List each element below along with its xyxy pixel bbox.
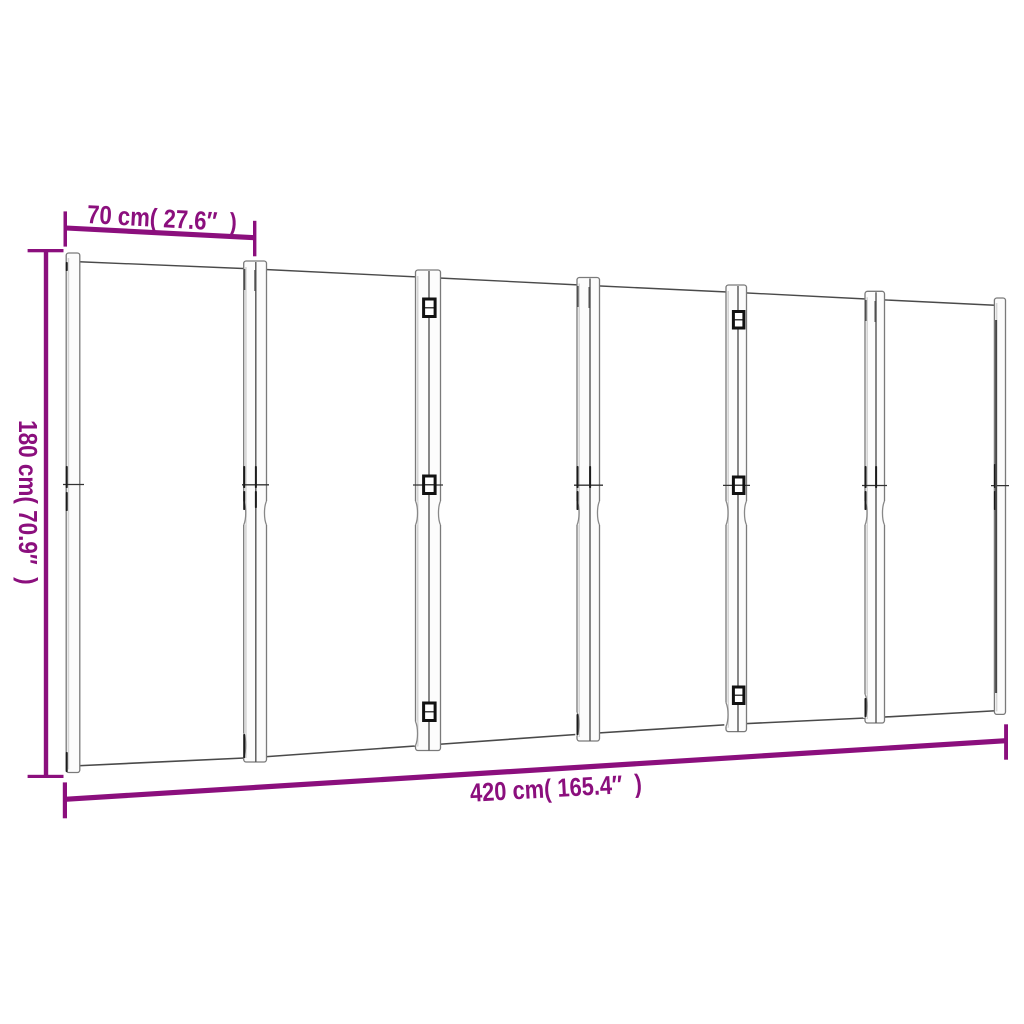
svg-text:180 cm( 70.9″ ): 180 cm( 70.9″ ) [13,420,43,585]
